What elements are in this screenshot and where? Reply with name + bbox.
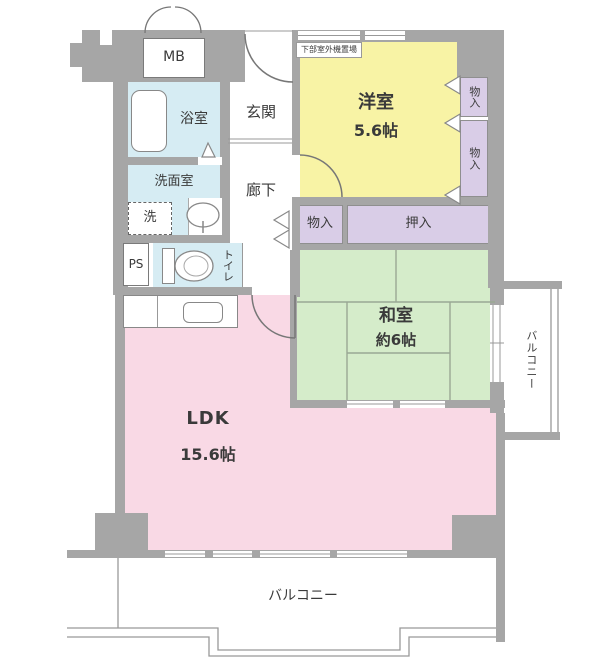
wall-segment [113, 287, 252, 295]
wall-segment [292, 244, 504, 250]
kitchen-sink [183, 302, 223, 323]
floor-plan: MB 玄関 廊下 浴室 洗面室 洗 PS トイレ 洋室 5.6帖 和室 約6帖 … [0, 0, 603, 658]
sliding-door-opening [347, 401, 393, 408]
folding-door-icon [274, 211, 289, 229]
storage-upper-right-label: 物入 [465, 79, 483, 115]
washroom-label: 洗面室 [128, 172, 220, 192]
counter-divider [157, 296, 158, 327]
wall-segment [496, 413, 505, 515]
sliding-door-opening [400, 401, 445, 408]
outdoor-unit-note: 下部室外機置場 [296, 42, 362, 58]
window [213, 551, 252, 557]
pipe-space-label: PS [127, 247, 145, 283]
japanese-room-size: 約6帖 [297, 330, 495, 350]
wall-segment [293, 400, 505, 408]
window [365, 31, 405, 40]
wall-segment [498, 281, 562, 289]
door-opening [292, 155, 300, 197]
window [100, 30, 112, 45]
kitchen-counter [123, 295, 238, 328]
wall-segment [70, 43, 83, 67]
window [165, 551, 205, 557]
ldk-size: 15.6帖 [148, 443, 268, 467]
japanese-room-label: 和室 [297, 306, 495, 328]
bathtub [131, 90, 167, 152]
balcony-bottom-label: バルコニー [250, 588, 356, 606]
folding-door-icon [274, 230, 289, 248]
balcony-right-label: バルコニー [522, 312, 540, 408]
western-room-label: 洋室 [292, 90, 460, 116]
entrance-door-arc [245, 34, 293, 82]
window [260, 551, 330, 557]
wall-segment [498, 432, 560, 440]
storage-lower-right-label: 物入 [465, 134, 483, 184]
toilet-tank [162, 248, 175, 284]
toilet-label: トイレ [219, 242, 236, 288]
western-room-size: 5.6帖 [292, 120, 460, 142]
washer-label: 洗 [128, 202, 172, 235]
entrance-label: 玄関 [230, 100, 292, 124]
ldk-label: LDK [148, 406, 268, 432]
wall-segment [95, 513, 148, 552]
bathroom-label: 浴室 [168, 109, 220, 131]
wall-segment [113, 235, 230, 243]
hallway-label: 廊下 [230, 178, 292, 202]
wall-segment [496, 557, 505, 642]
meter-box-label: MB [143, 38, 205, 78]
sink-counter [188, 198, 222, 235]
wall-segment [292, 197, 504, 205]
storage-hall-label: 物入 [297, 214, 343, 234]
window [298, 31, 360, 40]
door-opening [198, 157, 222, 165]
wall-segment [290, 250, 297, 408]
futon-closet-label: 押入 [347, 214, 490, 234]
window [337, 551, 407, 557]
